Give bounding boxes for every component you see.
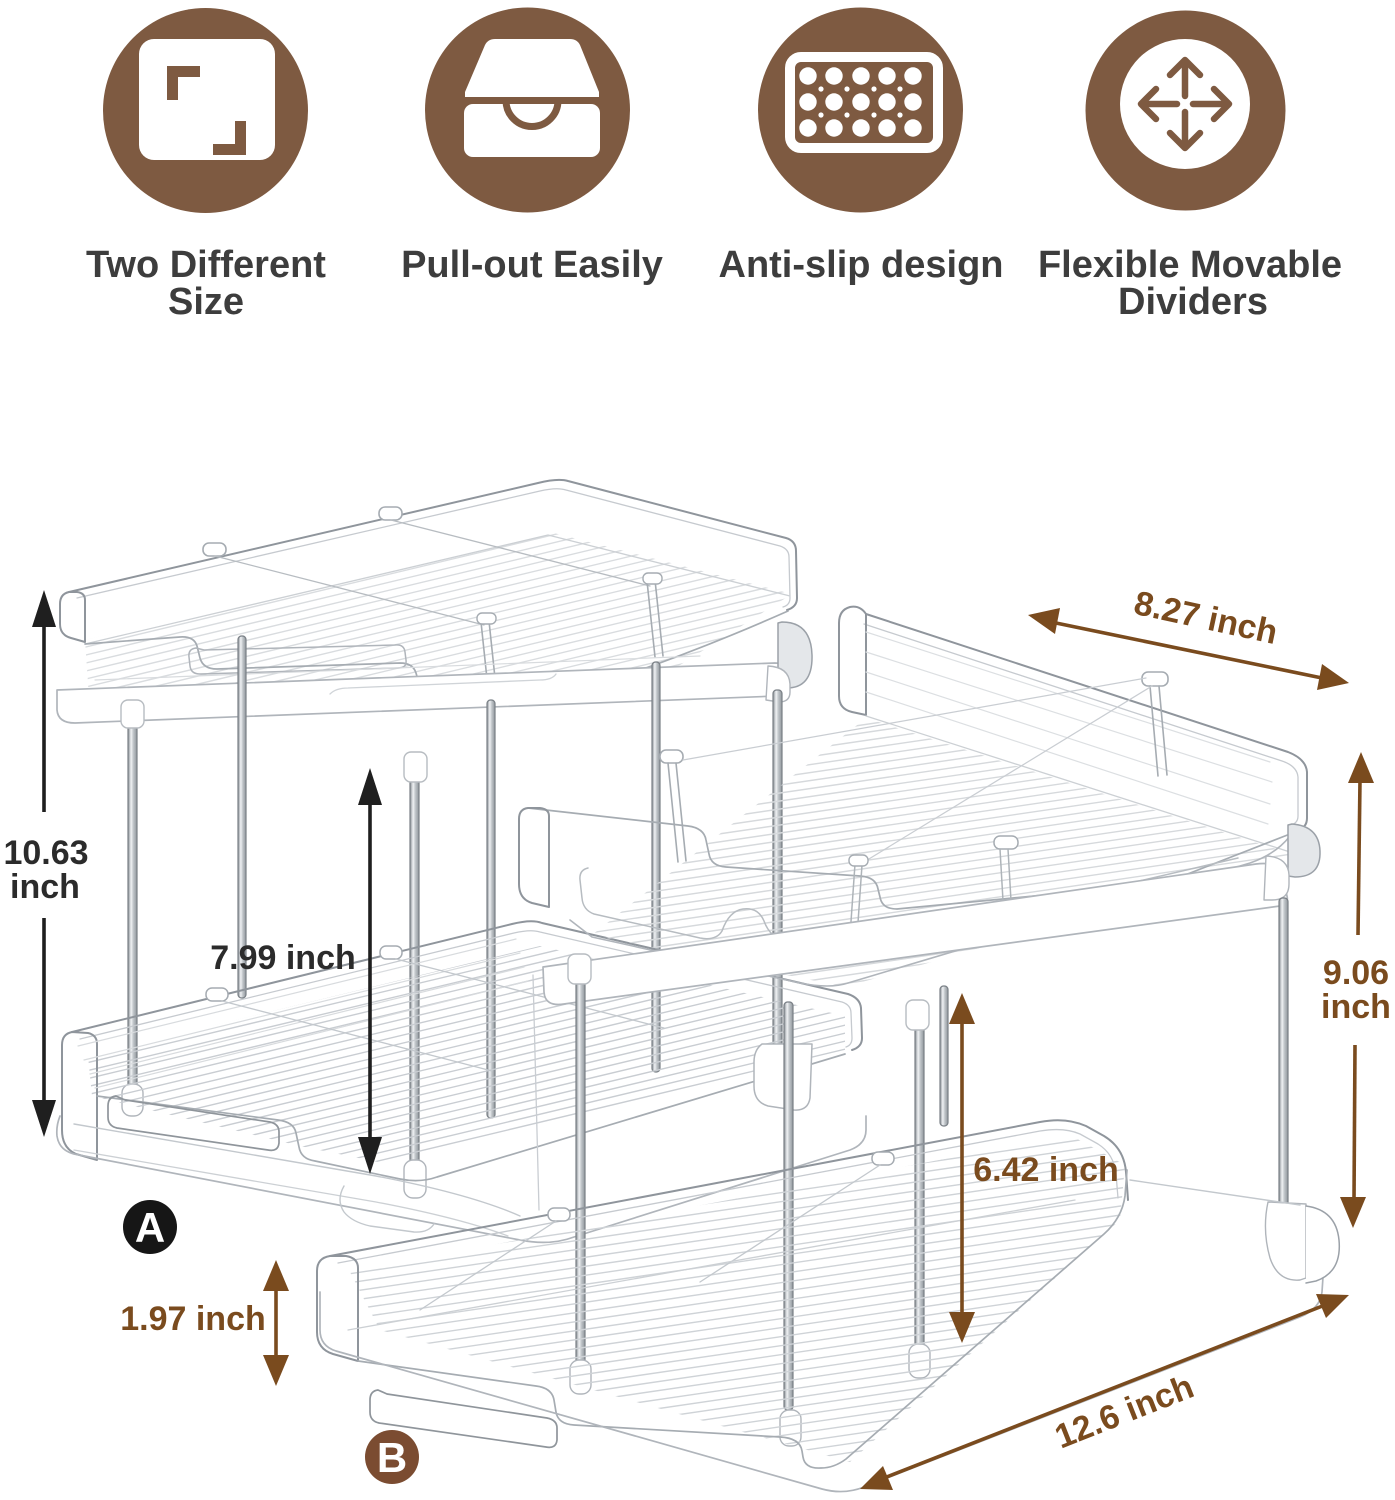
svg-text:10.63: 10.63 [3, 834, 88, 872]
svg-text:Dividers: Dividers [1118, 281, 1268, 323]
svg-text:Pull-out Easily: Pull-out Easily [401, 244, 663, 286]
svg-text:Size: Size [168, 281, 244, 323]
svg-text:1.97 inch: 1.97 inch [120, 1300, 266, 1338]
svg-text:A: A [135, 1204, 165, 1251]
svg-text:Flexible Movable: Flexible Movable [1038, 244, 1342, 286]
svg-text:7.99 inch: 7.99 inch [210, 939, 356, 977]
svg-text:Anti-slip design: Anti-slip design [719, 244, 1004, 286]
svg-text:inch: inch [1321, 988, 1391, 1026]
svg-text:Two Different: Two Different [86, 244, 326, 286]
svg-text:inch: inch [10, 868, 80, 906]
svg-text:B: B [377, 1434, 407, 1481]
svg-text:9.06: 9.06 [1323, 954, 1389, 992]
svg-text:12.6 inch: 12.6 inch [1050, 1368, 1199, 1457]
svg-text:6.42 inch: 6.42 inch [973, 1151, 1119, 1189]
